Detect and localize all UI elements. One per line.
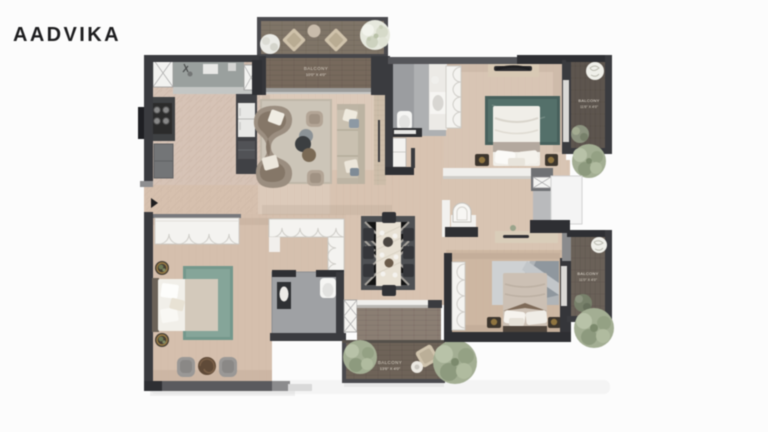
svg-text:13'6" X 4'0": 13'6" X 4'0" [380, 366, 401, 371]
svg-text:BALCONY: BALCONY [304, 66, 328, 71]
svg-text:BALCONY: BALCONY [378, 360, 402, 365]
svg-text:BALCONY: BALCONY [578, 98, 599, 103]
svg-text:10'0" X 4'0": 10'0" X 4'0" [306, 72, 327, 77]
svg-text:11'0" X 4'0": 11'0" X 4'0" [579, 278, 598, 282]
svg-text:AADVIKA: AADVIKA [13, 24, 121, 46]
svg-text:BALCONY: BALCONY [577, 271, 598, 276]
svg-text:11'6" X 4'0": 11'6" X 4'0" [580, 105, 599, 109]
